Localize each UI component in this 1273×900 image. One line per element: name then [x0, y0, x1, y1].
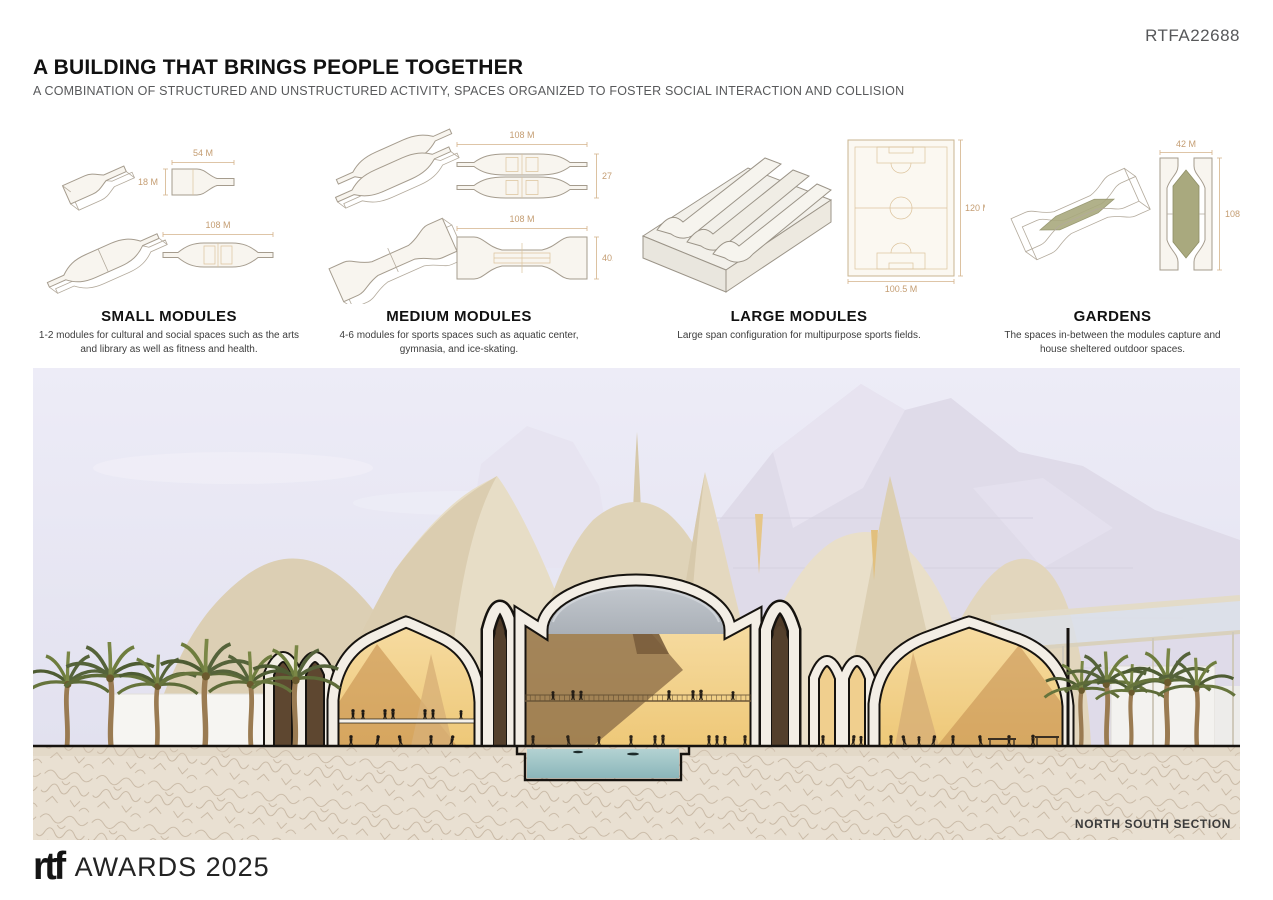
dim-small-width: 54 M	[193, 148, 213, 158]
dim-small-length: 108 M	[205, 220, 230, 230]
cut-tower-right	[766, 607, 794, 746]
module-desc-large: Large span configuration for multipurpos…	[677, 329, 920, 343]
module-name-medium: MEDIUM MODULES	[386, 308, 532, 325]
medium-modules-diagram-icon: 108 M 27 M	[305, 118, 613, 304]
dim-medium-w1: 108 M	[509, 130, 534, 140]
title-block: A BUILDING THAT BRINGS PEOPLE TOGETHER A…	[33, 56, 904, 98]
dim-medium-w2: 108 M	[509, 214, 534, 224]
module-card-large: 120 M 100.5 M	[613, 118, 985, 357]
rtf-logo-icon: rtf	[33, 848, 63, 887]
module-card-medium: 108 M 27 M	[305, 118, 613, 357]
dim-large-height: 120 M	[965, 203, 985, 213]
module-desc-small: 1-2 modules for cultural and social spac…	[37, 329, 301, 357]
dim-medium-h2: 40.5 M	[602, 253, 613, 263]
dim-gardens-width: 42 M	[1176, 139, 1196, 149]
module-card-gardens: 42 M 108 M GARDENS The spaces in-between…	[985, 118, 1240, 357]
module-card-small: 54 M 18 M 108 M	[33, 118, 305, 357]
submission-id: RTFA22688	[1145, 26, 1240, 46]
module-desc-medium: 4-6 modules for sports spaces such as aq…	[323, 329, 595, 357]
right-double-arch	[814, 661, 870, 746]
page-subtitle: A COMBINATION OF STRUCTURED AND UNSTRUCT…	[33, 84, 904, 98]
module-name-gardens: GARDENS	[1074, 308, 1152, 325]
gardens-diagram-icon: 42 M 108 M	[985, 118, 1240, 304]
dim-small-height: 18 M	[138, 177, 158, 187]
north-south-section-drawing: NORTH SOUTH SECTION	[33, 368, 1240, 840]
large-modules-diagram-icon: 120 M 100.5 M	[613, 118, 985, 304]
hall-left	[333, 622, 480, 746]
small-modules-diagram-icon: 54 M 18 M 108 M	[33, 118, 305, 304]
section-caption: NORTH SOUTH SECTION	[1075, 817, 1231, 831]
section-render: NORTH SOUTH SECTION	[33, 368, 1240, 840]
dim-gardens-height: 108 M	[1225, 209, 1240, 219]
dim-large-width: 100.5 M	[885, 284, 918, 294]
module-name-large: LARGE MODULES	[731, 308, 868, 325]
modules-row: 54 M 18 M 108 M	[33, 118, 1240, 357]
page-title: A BUILDING THAT BRINGS PEOPLE TOGETHER	[33, 56, 904, 79]
footer-brand: rtf AWARDS 2025	[33, 848, 270, 886]
module-name-small: SMALL MODULES	[101, 308, 237, 325]
dim-medium-h1: 27 M	[602, 171, 613, 181]
awards-text: AWARDS 2025	[75, 852, 270, 883]
presentation-board: RTFA22688 A BUILDING THAT BRINGS PEOPLE …	[0, 0, 1273, 900]
ground	[33, 746, 1240, 840]
module-desc-gardens: The spaces in-between the modules captur…	[993, 329, 1233, 357]
cut-tower-left	[488, 607, 512, 746]
